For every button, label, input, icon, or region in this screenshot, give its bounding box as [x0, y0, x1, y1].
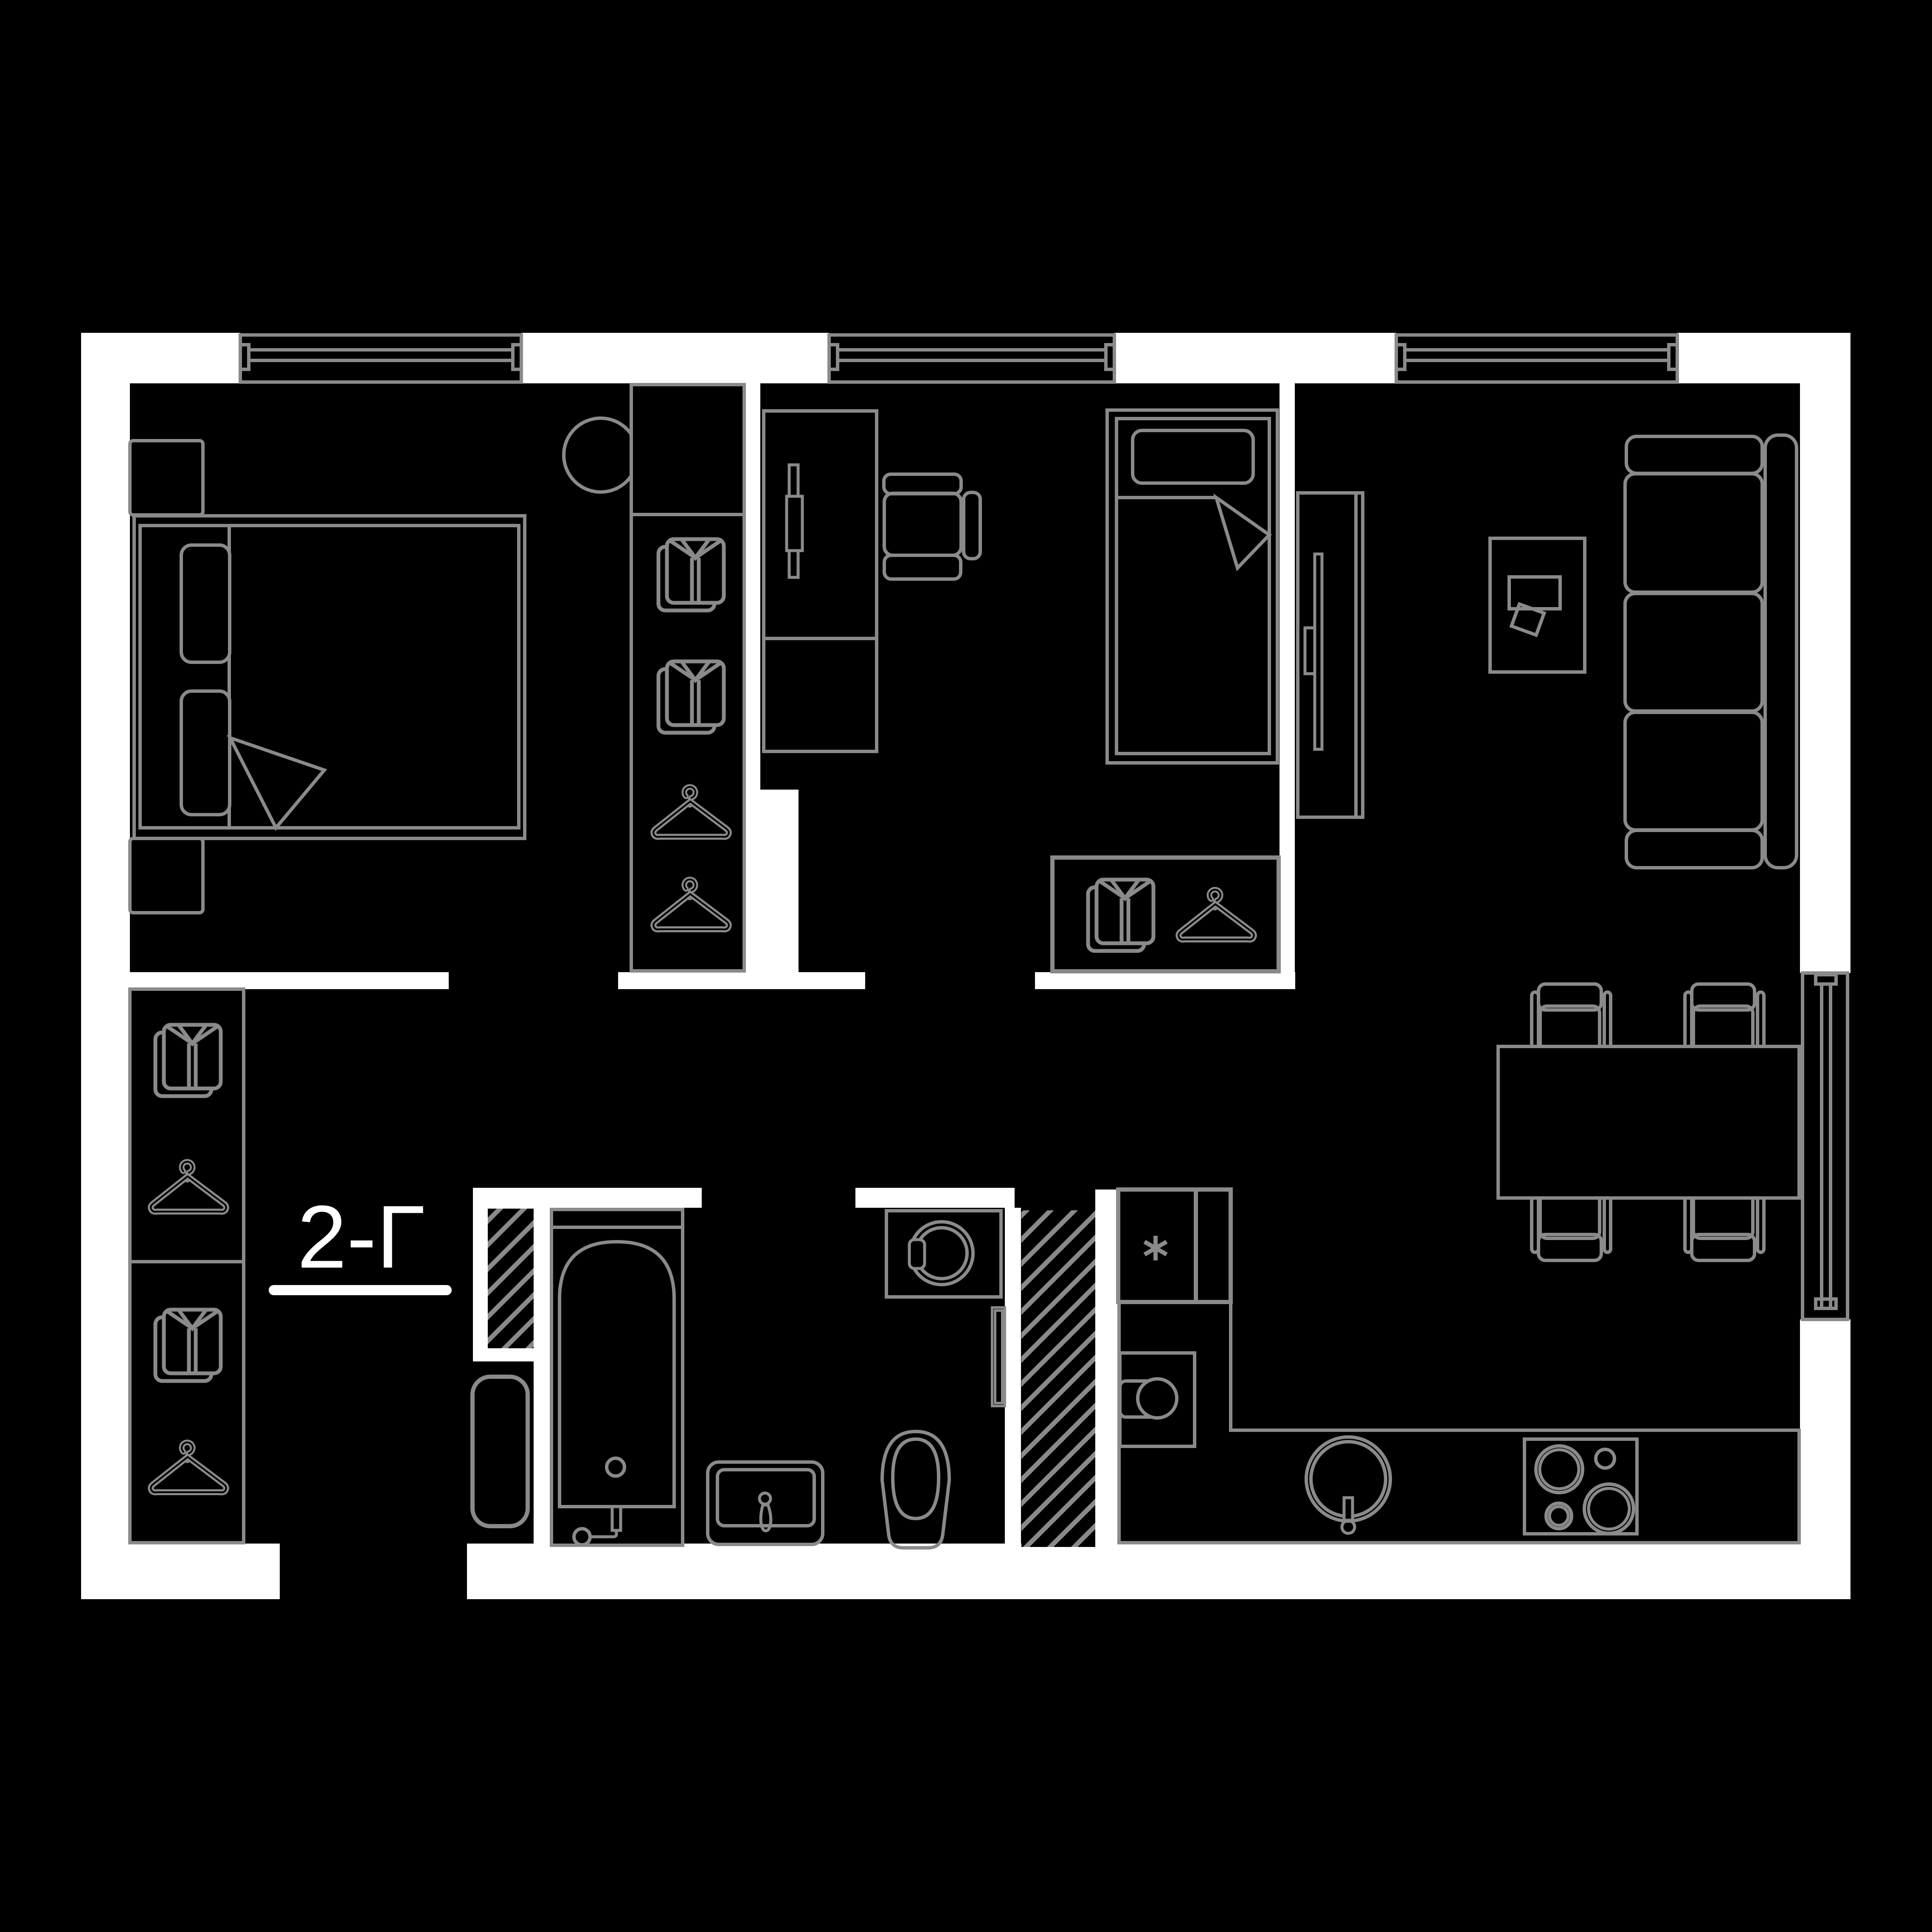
svg-text:2-Г: 2-Г	[297, 1187, 425, 1287]
